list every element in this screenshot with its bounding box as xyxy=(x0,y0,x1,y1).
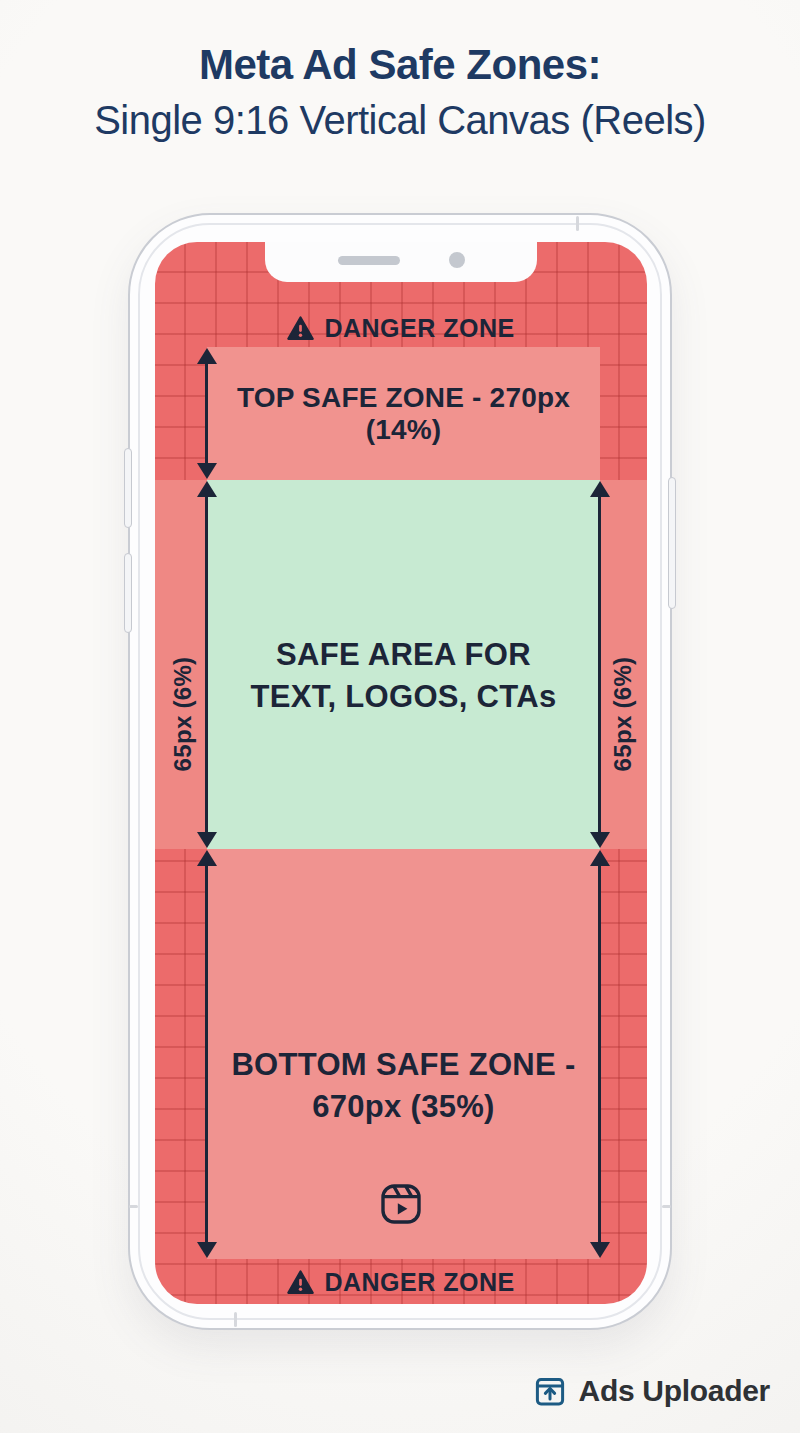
right-margin-label: 65px (6%) xyxy=(609,657,637,772)
phone-notch xyxy=(265,242,537,282)
antenna-line xyxy=(662,1205,671,1208)
volume-down-button xyxy=(124,553,132,633)
reels-icon xyxy=(377,1180,425,1228)
brand-footer: Ads Uploader xyxy=(532,1370,770,1412)
antenna-line xyxy=(234,1312,237,1327)
bottom-safe-zone-line-1: BOTTOM SAFE ZONE - xyxy=(207,1044,600,1086)
safe-area-line-2: TEXT, LOGOS, CTAs xyxy=(207,676,600,718)
top-safe-zone-arrow xyxy=(205,363,208,464)
bottom-safe-zone-arrow-right xyxy=(598,865,601,1243)
page-subtitle: Single 9:16 Vertical Canvas (Reels) xyxy=(0,96,800,144)
phone-screen: TOP SAFE ZONE - 270px (14%) DANGER ZONE xyxy=(155,242,647,1304)
safe-area-arrow-left xyxy=(205,496,208,833)
title-block: Meta Ad Safe Zones: Single 9:16 Vertical… xyxy=(0,40,800,144)
front-camera xyxy=(449,252,465,268)
bottom-safe-zone-label: BOTTOM SAFE ZONE - 670px (35%) xyxy=(207,1044,600,1128)
antenna-line xyxy=(129,1205,138,1208)
top-safe-zone-label: TOP SAFE ZONE - 270px (14%) xyxy=(207,382,600,446)
warning-triangle-icon xyxy=(287,1269,314,1296)
page-title: Meta Ad Safe Zones: xyxy=(0,40,800,90)
left-margin-label: 65px (6%) xyxy=(169,657,197,772)
safe-area-label: SAFE AREA FOR TEXT, LOGOS, CTAs xyxy=(207,634,600,718)
upload-box-icon xyxy=(532,1373,568,1409)
antenna-line xyxy=(576,216,579,231)
bottom-safe-zone-line-2: 670px (35%) xyxy=(207,1086,600,1128)
volume-up-button xyxy=(124,448,132,528)
bottom-danger-zone-label: DANGER ZONE xyxy=(155,1264,647,1300)
top-safe-zone: TOP SAFE ZONE - 270px (14%) xyxy=(207,347,600,480)
safe-area-arrow-right xyxy=(598,496,601,833)
speaker-slot xyxy=(338,256,400,265)
power-button xyxy=(668,477,676,609)
danger-zone-text: DANGER ZONE xyxy=(324,1268,514,1297)
danger-zone-text: DANGER ZONE xyxy=(324,314,514,343)
phone-mockup: TOP SAFE ZONE - 270px (14%) DANGER ZONE xyxy=(128,213,672,1330)
bottom-safe-zone-arrow-left xyxy=(205,865,208,1243)
infographic: Meta Ad Safe Zones: Single 9:16 Vertical… xyxy=(0,0,800,1433)
brand-name: Ads Uploader xyxy=(579,1374,770,1408)
top-danger-zone-label: DANGER ZONE xyxy=(155,310,647,346)
safe-area-line-1: SAFE AREA FOR xyxy=(207,634,600,676)
warning-triangle-icon xyxy=(287,315,314,342)
